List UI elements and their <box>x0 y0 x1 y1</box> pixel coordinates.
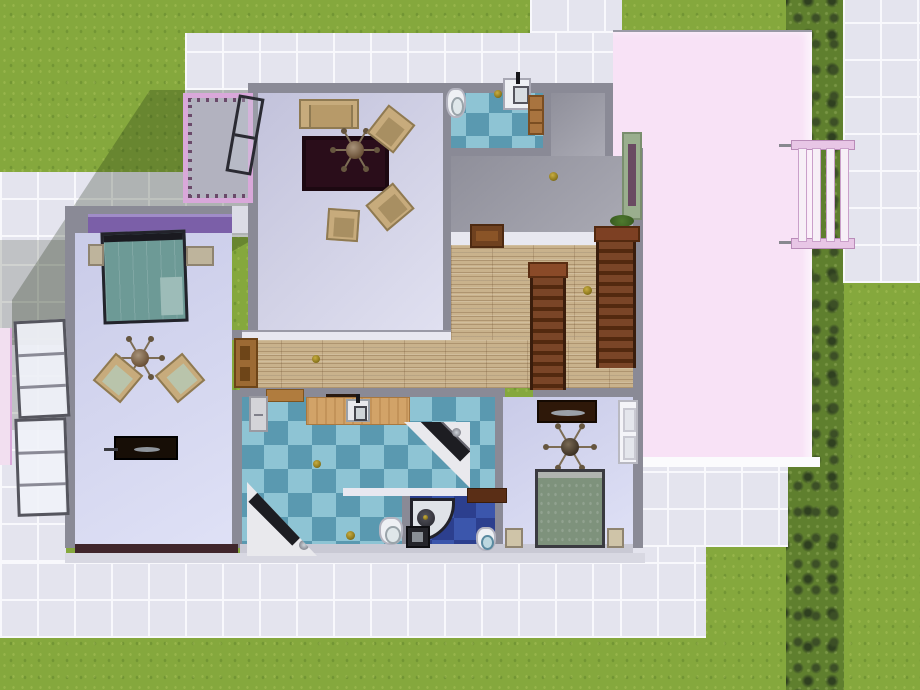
roof-edge-highlight <box>613 457 820 467</box>
nightstand[interactable] <box>505 528 523 548</box>
pedestal-sink[interactable] <box>503 78 531 110</box>
grey-room-floor-upper <box>551 93 605 156</box>
trellis-post <box>826 148 835 242</box>
door-carving <box>240 346 250 360</box>
sims-floorplan-scene <box>0 0 920 690</box>
gold-fixture[interactable] <box>346 531 355 540</box>
wall-bedroom-kitchen-b <box>232 390 242 548</box>
dresser-shelf-line <box>530 109 542 111</box>
tub-drain <box>452 428 461 437</box>
hallway-floor-lower <box>240 340 633 388</box>
toilet[interactable] <box>446 88 466 118</box>
wall-right-upper <box>605 83 613 156</box>
table-top <box>476 231 498 241</box>
sofa-cushions <box>309 105 353 127</box>
armchair-seat <box>333 217 354 237</box>
nightstand[interactable] <box>607 528 624 548</box>
chair-cushion <box>167 363 198 394</box>
wall-bottom-maroon-face <box>75 544 238 553</box>
toilet[interactable] <box>476 527 496 551</box>
door-pane <box>623 408 636 432</box>
trellis-post <box>812 148 821 242</box>
sink-faucet <box>516 72 520 84</box>
staircase[interactable] <box>596 242 636 368</box>
nightstand[interactable] <box>186 246 214 266</box>
grey-room-floor <box>451 156 633 232</box>
patio-tile-top-band <box>185 33 622 90</box>
ceiling-fan[interactable] <box>546 423 594 471</box>
door-pane <box>623 436 636 460</box>
sink-basin <box>412 532 423 542</box>
fridge-handle <box>254 414 263 416</box>
counter-end-wood[interactable] <box>266 389 304 402</box>
gold-fixture[interactable] <box>313 460 321 468</box>
shower-drain <box>423 515 428 520</box>
casement-window[interactable] <box>14 417 69 517</box>
door-panel <box>628 144 636 206</box>
sink-basin <box>513 86 529 104</box>
fence-ticks <box>188 194 248 198</box>
bed-folded-sheet <box>160 277 183 316</box>
stair-landing <box>594 226 640 242</box>
bathroom-dresser[interactable] <box>528 95 544 135</box>
nightstand[interactable] <box>88 244 104 266</box>
patio-tile-top-small <box>530 0 622 33</box>
garden-trellis[interactable] <box>791 136 853 252</box>
wall-living-right <box>443 83 451 340</box>
staircase[interactable] <box>530 278 566 390</box>
sink-basin <box>354 406 367 421</box>
open-white-door[interactable] <box>618 400 638 464</box>
wall-bath-bottom <box>443 148 551 156</box>
patio-tile-bottom-band <box>0 562 706 638</box>
wall-living-bottom <box>240 330 451 340</box>
gold-fixture[interactable] <box>583 286 592 295</box>
wall-top <box>248 83 613 93</box>
wall-shelf[interactable] <box>467 488 507 503</box>
refrigerator[interactable] <box>249 396 268 432</box>
toilet[interactable] <box>379 517 403 545</box>
gold-fixture[interactable] <box>494 90 502 98</box>
trellis-post <box>798 148 807 242</box>
fence-ticks <box>188 98 192 198</box>
double-bed-teal[interactable] <box>100 230 188 325</box>
dresser-shelf-line <box>530 122 542 124</box>
trellis-post <box>840 148 849 242</box>
writing-desk[interactable] <box>114 436 178 460</box>
wall-bath-right <box>543 83 551 156</box>
door-carving <box>240 367 250 381</box>
desk-lamp-arm <box>104 448 118 451</box>
double-bed-olive[interactable] <box>535 469 605 548</box>
wall-bottom-outer <box>65 553 645 563</box>
casement-window[interactable] <box>13 319 70 420</box>
wall-bedroom-top-outer <box>65 206 248 214</box>
console-table[interactable] <box>470 224 504 248</box>
open-wooden-door[interactable] <box>234 338 258 388</box>
sofa[interactable] <box>299 99 359 129</box>
dresser-ornament <box>551 410 585 416</box>
window-bar <box>235 133 255 139</box>
wall-kitchen-bedroom <box>495 388 503 548</box>
armchair-seat <box>375 117 404 147</box>
bed-headboard <box>538 472 602 478</box>
desk-object <box>134 447 160 452</box>
bed-headboard <box>104 233 183 243</box>
stair-landing <box>528 262 568 278</box>
wall-bedroom-top-corner <box>65 214 88 233</box>
sink-faucet <box>356 394 360 403</box>
green-exterior-door[interactable] <box>622 132 642 220</box>
edge-fence-fragment <box>0 328 12 465</box>
chair-cushion <box>102 365 133 396</box>
gold-fixture[interactable] <box>549 172 558 181</box>
gold-fixture[interactable] <box>312 355 320 363</box>
armchair[interactable] <box>326 208 360 242</box>
patio-tile-right-patch <box>630 467 788 547</box>
wall-cap-white <box>232 206 248 233</box>
kitchen-sink[interactable] <box>346 399 370 422</box>
vanity-sink-dark[interactable] <box>406 526 430 548</box>
dresser[interactable] <box>537 400 597 423</box>
